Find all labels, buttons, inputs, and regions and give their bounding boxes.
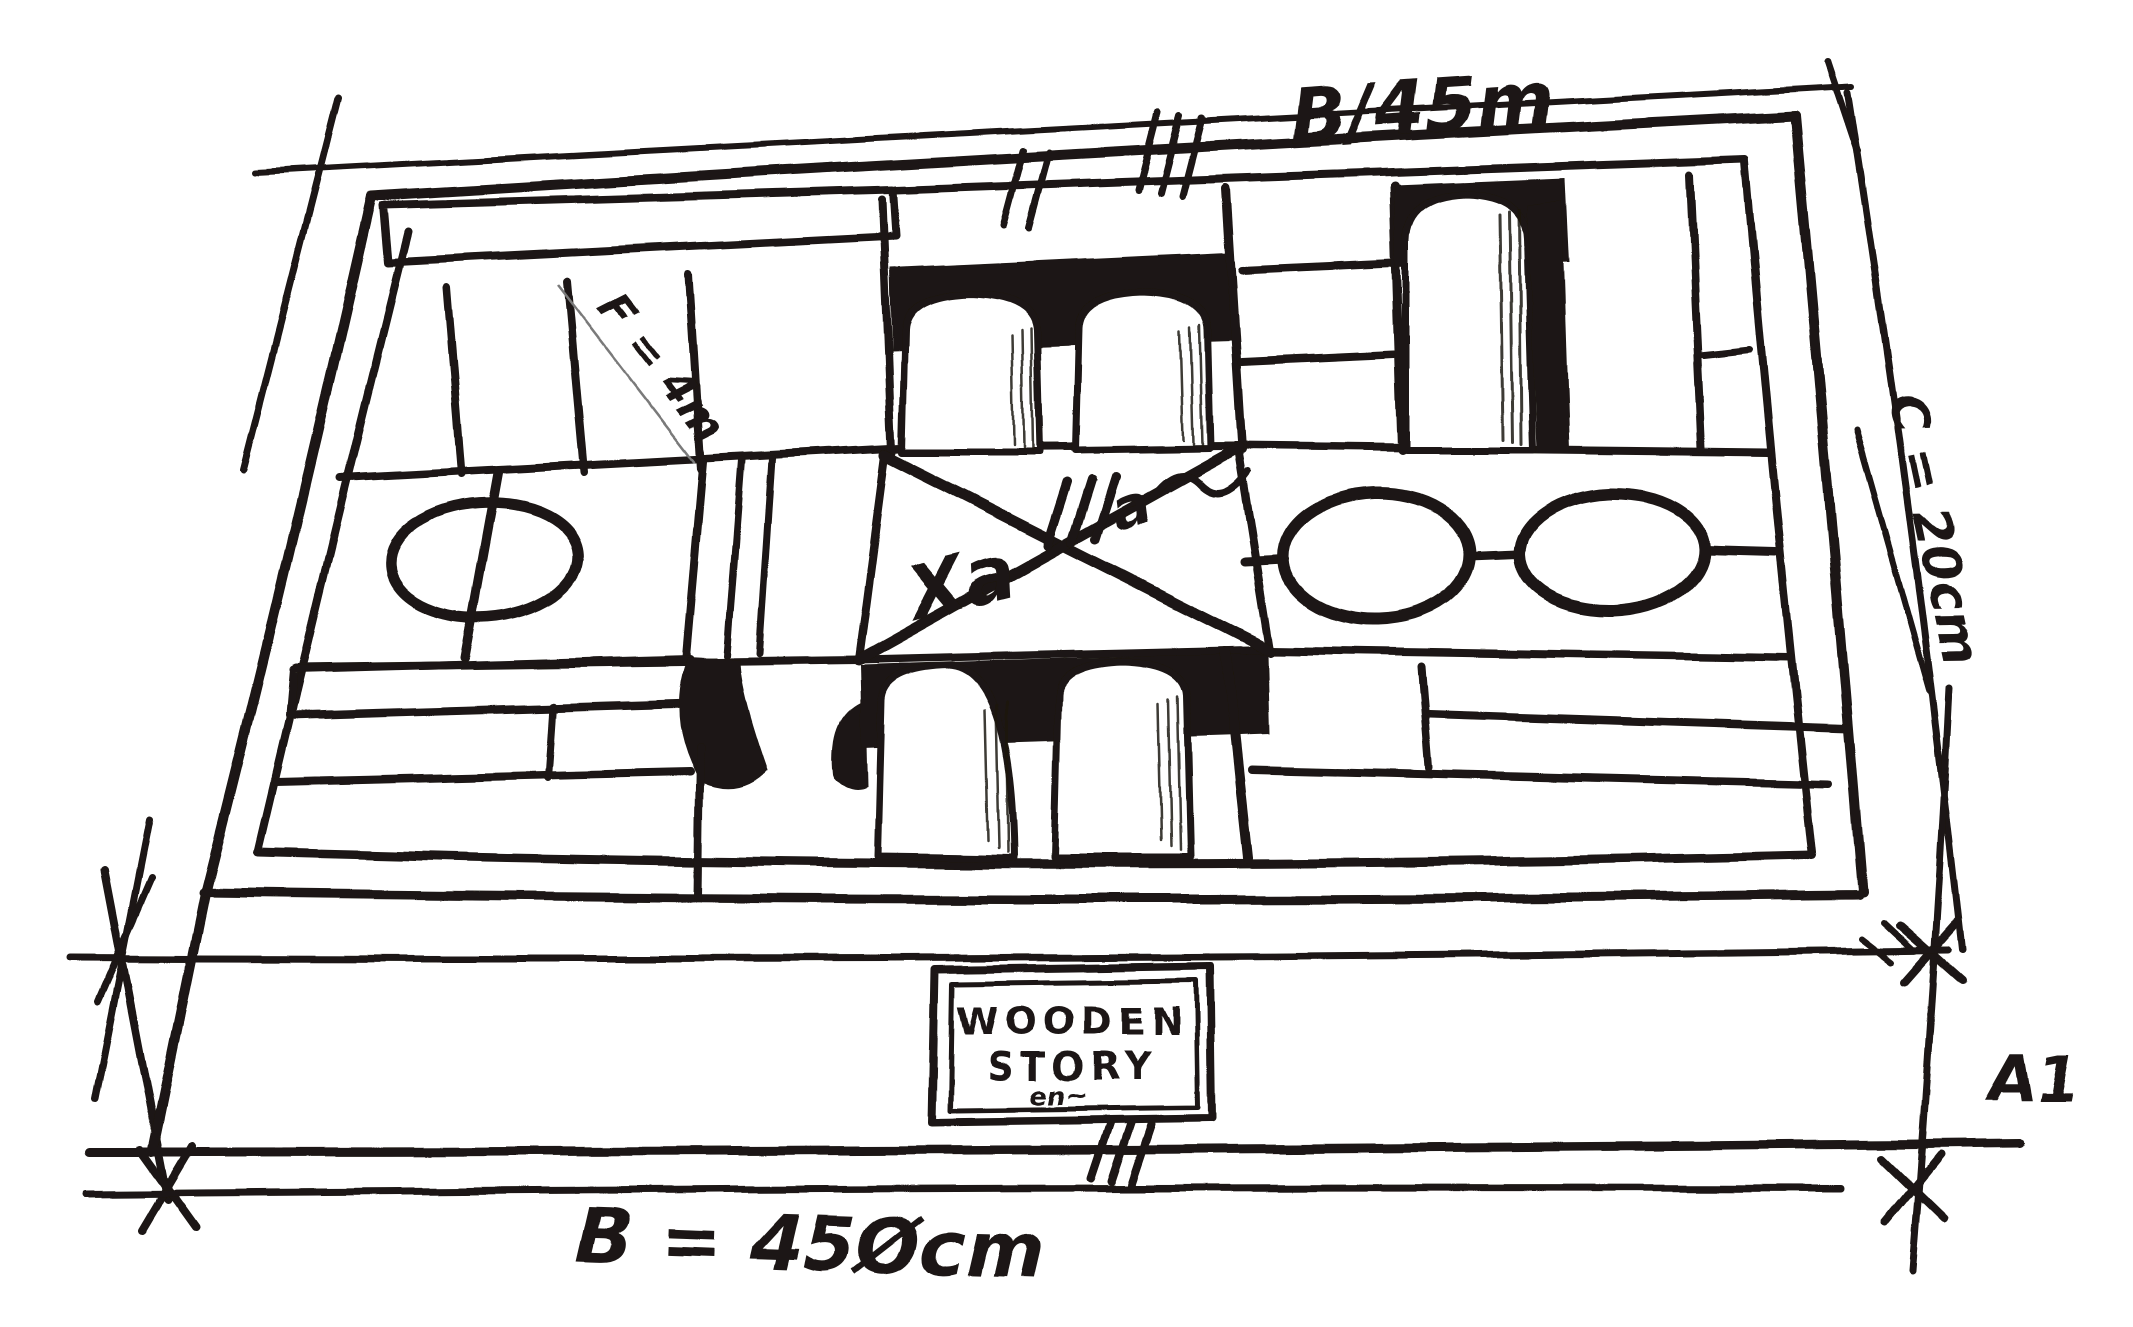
brand-label-line1: WOODEN [956, 1000, 1188, 1044]
plank-stack-top-right [1242, 186, 1402, 450]
arch-blocks-bottom [860, 652, 1270, 858]
brand-label-scribble: en~ [1029, 1081, 1087, 1111]
brand-label: WOODEN STORY en~ [932, 966, 1212, 1122]
dimension-line-right [1848, 92, 1962, 1272]
block-note-label: F = 4m [587, 283, 734, 452]
plank-stack-bottom-right [1252, 666, 1848, 784]
sketch-canvas: WOODEN STORY en~ B/45m C = 20cm A1 B = 4… [0, 0, 2133, 1327]
arch-blocks-top [882, 188, 1242, 452]
dim-label-right-depth: C = 20cm [1875, 388, 1991, 670]
oval-blocks-row-right [1245, 490, 1776, 622]
center-mark-label: Xa [896, 528, 1025, 638]
dim-label-top-width: B/45m [1287, 56, 1556, 160]
center-tally-letter: a [1101, 469, 1159, 546]
dome-column-block [1394, 175, 1750, 450]
blocks-box-sketch: WOODEN STORY en~ B/45m C = 20cm A1 B = 4… [0, 0, 2133, 1327]
dim-label-bottom-width: B = 45Øcm [574, 1191, 1046, 1296]
hatched-strip-top [383, 190, 896, 262]
dim-label-height-mark: A1 [1983, 1042, 2079, 1115]
